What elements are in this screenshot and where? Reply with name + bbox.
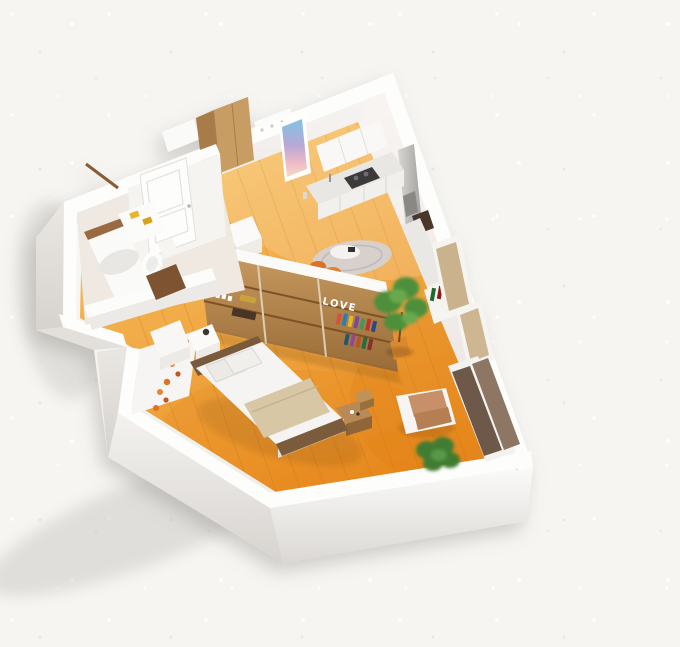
speckled-backdrop: LOVE [0,0,680,647]
console-shelf [162,119,200,152]
door-handle [187,204,191,208]
armchair [396,388,456,438]
light-switch [303,192,307,199]
apartment-3d-floorplan: LOVE [0,0,680,647]
towel-rail [86,164,118,188]
table-lamp [203,329,209,335]
side-table [330,245,360,259]
table-tray [348,247,355,252]
